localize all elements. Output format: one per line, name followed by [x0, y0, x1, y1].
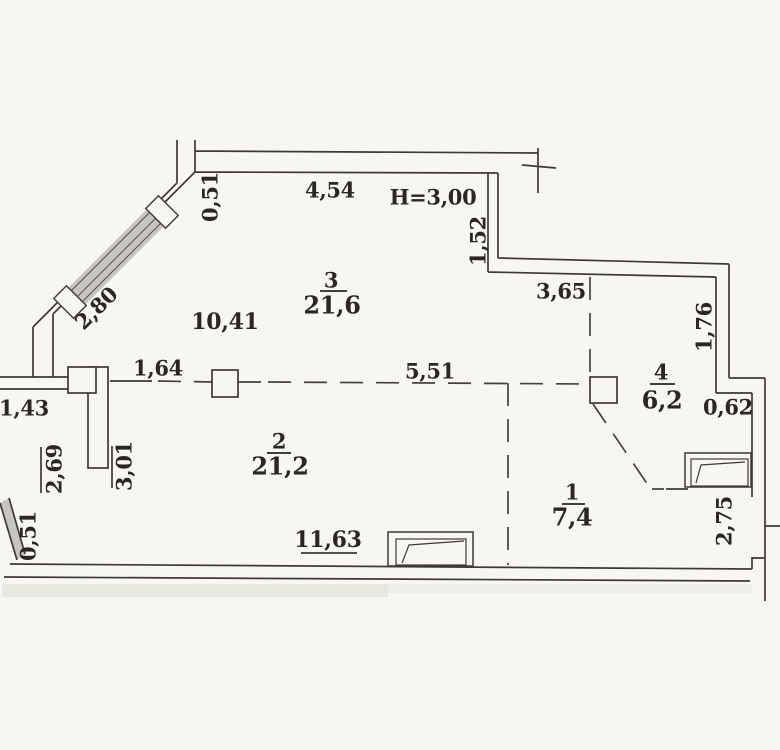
dim-right-wall-lower: 2,75	[712, 496, 737, 546]
dim-partition: 3,01	[112, 441, 137, 491]
column-left	[68, 367, 96, 393]
room-3-number: 3	[324, 268, 338, 293]
door-symbol-right	[685, 453, 751, 487]
dim-left-lower: 2,69	[42, 444, 67, 494]
column-right	[590, 377, 617, 403]
room-4-area: 6,2	[642, 386, 683, 415]
dim-room3-width: 10,41	[191, 309, 258, 335]
dim-bottom-wall: 11,63	[294, 527, 361, 553]
dim-top-offset: 0,51	[198, 172, 223, 222]
door-symbol-bottom	[388, 532, 473, 566]
scan-smudge-left	[2, 584, 388, 597]
room-1-number: 1	[565, 480, 579, 505]
dim-column-spacing: 1,64	[133, 356, 183, 381]
dim-left-stub: 1,43	[0, 396, 49, 421]
door-frame-outer	[685, 453, 751, 487]
height-note: H=3,00	[390, 185, 477, 210]
room-1-area: 7,4	[552, 503, 593, 532]
dim-mid-wall: 3,65	[536, 279, 586, 304]
column-mid	[212, 370, 238, 397]
room-4-number: 4	[654, 360, 668, 385]
dim-open-span: 5,51	[405, 359, 455, 384]
scan-smudge-right	[388, 584, 752, 593]
dim-right-wall-upper: 1,76	[692, 302, 717, 352]
dim-right-step-upper: 1,52	[466, 216, 491, 266]
door-frame-outer	[388, 532, 473, 566]
room-2-area: 21,2	[251, 452, 308, 481]
floor-plan-svg: 0,51 4,54 H=3,00 1,52 2,80 10,41 3,65 1,…	[0, 0, 780, 750]
room-2-number: 2	[272, 429, 286, 454]
floor-plan: 0,51 4,54 H=3,00 1,52 2,80 10,41 3,65 1,…	[0, 0, 780, 750]
dim-top-wall: 4,54	[305, 178, 355, 203]
dim-step-width: 0,62	[703, 395, 753, 420]
room-3-area: 21,6	[303, 291, 360, 320]
dim-bottom-offset: 0,51	[16, 511, 41, 561]
